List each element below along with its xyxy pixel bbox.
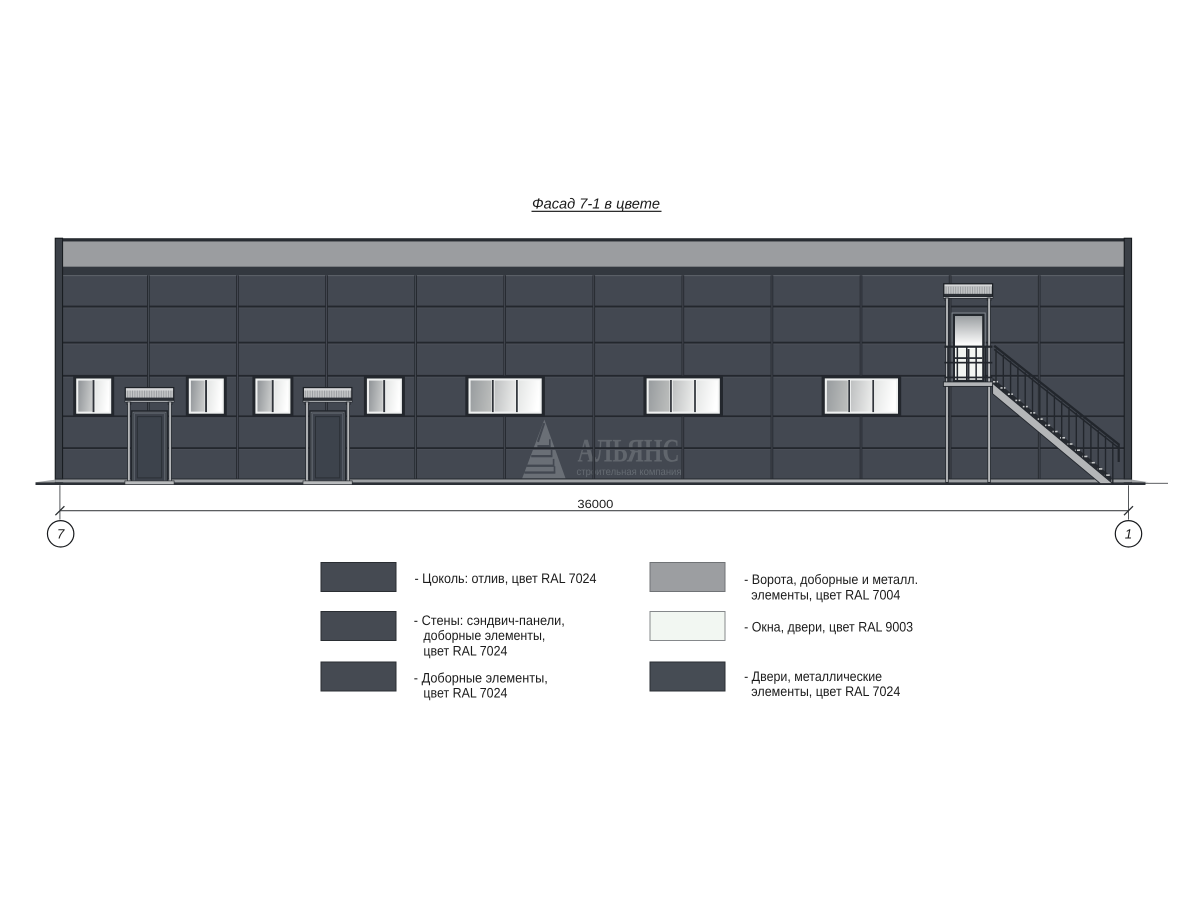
svg-text:цвет RAL 7024: цвет RAL 7024 xyxy=(423,686,507,701)
svg-text:строительная компания: строительная компания xyxy=(577,467,682,478)
svg-text:цвет RAL 7024: цвет RAL 7024 xyxy=(423,644,507,659)
svg-text:элементы, цвет RAL 7024: элементы, цвет RAL 7024 xyxy=(751,684,900,699)
svg-text:36000: 36000 xyxy=(577,497,613,511)
svg-text:- Стены: сэндвич-панели,: - Стены: сэндвич-панели, xyxy=(414,613,565,628)
svg-text:7: 7 xyxy=(57,526,65,541)
svg-text:доборные элементы,: доборные элементы, xyxy=(423,628,545,643)
svg-text:элементы, цвет RAL 7004: элементы, цвет RAL 7004 xyxy=(751,587,900,602)
svg-text:1: 1 xyxy=(1125,526,1132,541)
svg-text:- Цоколь: отлив, цвет RAL 7024: - Цоколь: отлив, цвет RAL 7024 xyxy=(415,571,597,586)
svg-text:- Доборные элементы,: - Доборные элементы, xyxy=(414,670,548,685)
svg-text:- Окна, двери, цвет RAL 9003: - Окна, двери, цвет RAL 9003 xyxy=(744,619,913,634)
svg-text:- Ворота, доборные и металл.: - Ворота, доборные и металл. xyxy=(744,572,918,587)
svg-text:- Двери, металлические: - Двери, металлические xyxy=(744,669,882,684)
svg-text:Фасад 7-1 в цвете: Фасад 7-1 в цвете xyxy=(532,197,660,213)
